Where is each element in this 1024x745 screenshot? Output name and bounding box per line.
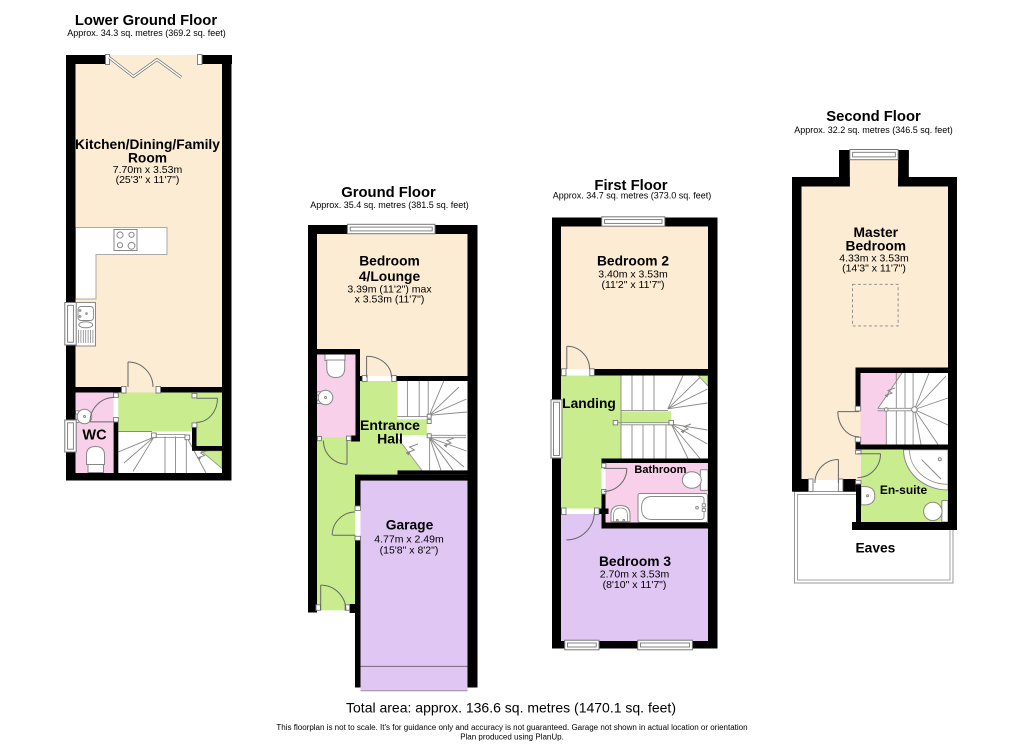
svg-text:Second Floor: Second Floor [826, 109, 921, 125]
svg-text:Lower Ground Floor: Lower Ground Floor [75, 13, 217, 29]
svg-text:WC: WC [82, 428, 107, 444]
svg-text:En-suite: En-suite [880, 483, 928, 497]
svg-text:Total area: approx. 136.6 sq.: Total area: approx. 136.6 sq. metres (14… [346, 700, 676, 716]
svg-text:Bedroom 3: Bedroom 3 [599, 554, 671, 569]
svg-text:Hall: Hall [377, 430, 403, 446]
svg-text:Approx. 35.4 sq. metres (381.5: Approx. 35.4 sq. metres (381.5 sq. feet) [310, 200, 469, 210]
svg-text:Garage: Garage [386, 518, 434, 533]
svg-text:Bathroom: Bathroom [634, 464, 686, 476]
svg-text:Bedroom: Bedroom [846, 238, 907, 253]
svg-text:Approx. 34.7 sq. metres (373.0: Approx. 34.7 sq. metres (373.0 sq. feet) [553, 191, 712, 201]
svg-text:Eaves: Eaves [855, 541, 895, 556]
svg-text:Bedroom: Bedroom [359, 254, 420, 269]
svg-text:(15'8" x 8'2"): (15'8" x 8'2") [380, 545, 439, 557]
svg-text:Approx. 32.2 sq. metres (346.5: Approx. 32.2 sq. metres (346.5 sq. feet) [794, 125, 953, 135]
svg-text:x 3.53m (11'7"): x 3.53m (11'7") [355, 294, 425, 306]
svg-text:(14'3" x 11'7"): (14'3" x 11'7") [842, 263, 906, 275]
svg-text:Ground Floor: Ground Floor [341, 185, 436, 201]
svg-text:Bedroom 2: Bedroom 2 [597, 254, 669, 269]
svg-text:4/Lounge: 4/Lounge [359, 269, 421, 284]
svg-text:Approx. 34.3 sq. metres (369.2: Approx. 34.3 sq. metres (369.2 sq. feet) [67, 28, 226, 38]
svg-text:This floorplan is not to scale: This floorplan is not to scale. It's for… [276, 723, 747, 732]
svg-text:Landing: Landing [562, 396, 616, 411]
svg-text:(25'3" x 11'7"): (25'3" x 11'7") [116, 174, 180, 186]
svg-text:(11'2" x 11'7"): (11'2" x 11'7") [601, 279, 664, 291]
svg-text:(8'10" x 11'7"): (8'10" x 11'7") [603, 579, 667, 591]
svg-text:Plan produced using PlanUp.: Plan produced using PlanUp. [460, 733, 564, 742]
